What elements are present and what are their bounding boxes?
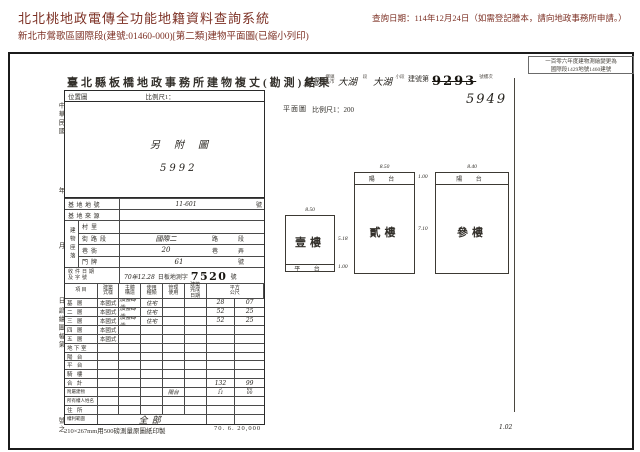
site-group-row: 村里 [79,221,264,233]
row-use [141,335,163,343]
row-complete-date [185,326,207,334]
site-location-group: 建物座落村里街路段國際二路段巷衖20巷弄門牌61號 [65,220,264,267]
row-structure [119,361,141,369]
plan-height-dim: 5.18 [338,236,348,242]
measurement-header-cell: 主體構造 [119,284,141,298]
measurement-table-row: 騎 樓 [65,370,264,379]
row-style [98,361,120,369]
row-sqm-int: 511 [207,388,236,396]
row-item-label: 陽 台 [65,353,98,361]
subsection-label: 小段 [395,74,405,79]
section-label: 段 [360,74,370,79]
remark-line2: 國際段1429地號1460建號 [529,66,633,74]
page-title: 北北桃地政電傳全功能地籍資料查詢系統 [18,8,270,27]
measurement-table-row: 基 層本國式加強磚造住宅2807 [65,299,264,308]
row-sqm-dec [235,335,264,343]
location-map-sheet-no: 5992 [160,163,197,174]
row-structure: 加強磚造 [119,299,141,307]
row-sqm-int: 52 [207,317,236,325]
plan-strip: 陽 台 [354,172,415,185]
measurement-table-row: 所有權人姓名 [65,397,264,406]
plan-strip: 平 台 [285,264,335,272]
site-group-rows: 村里街路段國際二路段巷衖20巷弄門牌61號 [79,221,264,267]
document-title: 臺北縣板橋地政事務所建物複丈(勘測)結果 [67,74,332,90]
plan-strip: 陽 台 [435,172,509,185]
row-sqm-dec: 6000 [235,388,264,396]
site-group-row-unit: 段 [238,234,264,243]
margin-note: 中華民國 [54,102,64,136]
site-row-label: 基地地號 [65,199,120,209]
measurement-table-row: 權利範圍全部 [65,415,264,424]
row-sqm-dec [235,415,264,424]
margin-note: 調繪圖幅第 [54,307,64,350]
row-style: 本國式 [98,308,120,316]
measurement-table-row: 合 計13299 [65,379,264,388]
plan-name: 參樓 [436,224,508,240]
building-no-prefix: 建號第 [408,74,429,84]
floor-plan-3: 陽 台參樓 [435,172,509,274]
plan-width-dim: 8.40 [435,164,509,170]
row-use [141,406,163,414]
row-style: 本國式 [98,326,120,334]
receipt-value: 70年12.28日板地測字7520號 [120,270,264,283]
row-sqm-dec: 99 [235,379,264,387]
row-structure [119,397,141,405]
floor-plan-scale: 比例尺1：200 [312,105,354,115]
measurement-header-cell: 平方公尺 [207,284,264,298]
row-sqm-int: 52 [207,308,236,316]
row-structure [119,335,141,343]
township-label: 鄉鎮區市 [325,74,335,84]
row-use [141,370,163,378]
row-complete-date [185,388,207,396]
row-structure [119,388,141,396]
row-manage [163,397,185,405]
measurement-table: 項 目建築式樣主體構造使用種類管理使用建築完成日期平方公尺基 層本國式加強磚造住… [64,283,265,425]
location-map-note: 另附圖 [150,136,222,151]
row-sqm-int [207,335,236,343]
receipt-office-text: 日板地測字 [158,272,188,281]
row-manage [163,406,185,414]
row-use [141,326,163,334]
measurement-table-row: 平 台 [65,361,264,370]
margin-note: 號之 [54,417,64,434]
row-structure [119,326,141,334]
measurement-header-cell: 項 目 [65,284,98,298]
site-group-row: 門牌61號 [79,256,264,268]
receipt-row: 收件日期及字號70年12.28日板地測字7520號 [65,267,264,284]
row-sqm-dec [235,361,264,369]
measurement-table-row: 四 層本國式 [65,326,264,335]
measurement-table-header: 項 目建築式樣主體構造使用種類管理使用建築完成日期平方公尺 [65,284,264,299]
floor-plan-section-label: 平面圖 [283,104,307,114]
plan-name: 壹樓 [286,234,334,250]
site-group-row: 巷衖20巷弄 [79,244,264,256]
row-sqm-dec [235,406,264,414]
row-item-label: 附屬建物 [65,388,98,396]
page-subtitle: 新北市鶯歌區國際段(建號:01460-000)[第二類]建物平面圖(已縮小列印) [18,28,309,42]
plan-height-dim: 7.10 [418,226,428,232]
building-header: 鶯歌 鄉鎮區市 大湖 段 大湖 小段 建號第 9293 號樓次 [303,74,493,89]
row-complete-date [185,397,207,405]
row-sqm-int [207,415,236,424]
row-complete-date [185,353,207,361]
row-use: 住宅 [141,317,163,325]
row-style [98,344,120,352]
section-value: 大湖 [338,74,357,88]
row-complete-date [185,344,207,352]
row-item-label: 權利範圍 [65,415,98,424]
site-group-row-unit: 路 [212,234,238,243]
location-map-box: 位置圖 比例尺1： 另附圖 5992 [64,90,265,198]
measurement-table-row: 住 所 [65,406,264,415]
row-sqm-int [207,406,236,414]
plan-width-dim: 8.50 [354,164,415,170]
row-sqm-dec [235,353,264,361]
measurement-table-row: 附屬建物陽台5116000 [65,388,264,397]
plan-strip-dim: 1.00 [418,174,428,180]
paper-spec-note: 210×267mm用500磅測量原圖紙印製 [64,425,166,435]
row-sqm-int [207,326,236,334]
row-manage: 陽台 [163,388,185,396]
site-group-label: 建物座落 [65,221,79,267]
building-no-old-stamp: 9293 [432,74,476,89]
row-style [98,388,120,396]
margin-note: 月 [54,242,64,251]
subsection-value: 大湖 [373,74,392,88]
plan-strip-dim: 1.00 [338,264,348,270]
site-group-row-label: 村里 [79,221,120,233]
row-use [141,397,163,405]
measurement-table-row: 陽 台 [65,353,264,362]
row-style [98,353,120,361]
measurement-header-cell: 建築式樣 [98,284,120,298]
row-item-label: 四 層 [65,326,98,334]
row-sqm-dec [235,370,264,378]
row-style [98,379,120,387]
row-item-label: 五 層 [65,335,98,343]
site-row-value: 11-601 [120,201,252,208]
receipt-date: 70年12.28 [124,272,155,281]
margin-note: 日 [54,297,64,306]
row-sqm-dec: 07 [235,299,264,307]
row-sqm-dec: 25 [235,317,264,325]
row-manage [163,344,185,352]
measurement-table-row: 三 層本國式加強磚造住宅5225 [65,317,264,326]
print-run-note: 70. 6. 20,000 [214,425,261,432]
row-item-label: 住 所 [65,406,98,414]
row-wide-value: 全部 [98,415,207,424]
remark-line1: 一百零六年度建物測繪變更為 [529,58,633,66]
row-manage [163,335,185,343]
row-manage [163,308,185,316]
site-group-row-unit: 號 [238,257,264,266]
floor-plan-2: 陽 台貳樓 [354,172,415,274]
location-map-scale-label: 比例尺1： [146,91,175,101]
row-complete-date [185,335,207,343]
row-sqm-int: 132 [207,379,236,387]
site-row: 基地地號11-601號 [65,198,264,209]
row-sqm-int [207,353,236,361]
row-sqm-dec [235,326,264,334]
margin-note: 年 [54,187,64,196]
row-style [98,397,120,405]
row-structure [119,353,141,361]
site-group-row-label: 門牌 [79,257,120,268]
row-use: 住宅 [141,299,163,307]
site-table: 基地地號11-601號基地來源建物座落村里街路段國際二路段巷衖20巷弄門牌61號… [64,198,265,284]
building-no-new: 5949 [466,92,507,107]
row-manage [163,326,185,334]
row-sqm-dec [235,397,264,405]
row-complete-date [185,379,207,387]
site-group-row-value: 國際二 [120,234,212,244]
measurement-header-cell: 使用種類 [141,284,163,298]
row-use: 住宅 [141,308,163,316]
row-manage [163,361,185,369]
row-sqm-int [207,370,236,378]
row-item-label: 地下室 [65,344,98,352]
remark-box: 一百零六年度建物測繪變更為 國際段1429地號1460建號 [528,56,634,74]
query-date: 查詢日期：114年12月24日（如需登記謄本，請向地政事務所申請。） [372,12,627,24]
row-manage [163,299,185,307]
row-item-label: 平 台 [65,361,98,369]
measurement-header-cell: 管理使用 [163,284,185,298]
corner-note: 1.02 [499,424,512,431]
building-no-suffix: 號樓次 [479,74,493,79]
plan-name: 貳樓 [355,224,414,240]
row-style: 本國式 [98,299,120,307]
row-use [141,353,163,361]
site-row-label: 基地來源 [65,210,120,220]
receipt-label-line2: 及字號 [68,276,119,282]
row-sqm-int [207,344,236,352]
row-complete-date [185,308,207,316]
row-item-label: 二 層 [65,308,98,316]
row-style [98,406,120,414]
township-value: 鶯歌 [303,74,322,88]
site-group-row-unit: 巷 [212,246,238,255]
receipt-suffix: 號 [230,272,236,281]
receipt-label: 收件日期及字號 [65,268,120,284]
row-item-label: 基 層 [65,299,98,307]
row-manage [163,379,185,387]
site-row-suffix: 號 [252,200,264,209]
site-group-row-label: 街路段 [79,234,120,245]
row-use [141,344,163,352]
floor-plan-1: 平 台壹樓 [285,215,335,272]
row-sqm-int [207,361,236,369]
row-structure: 加強磚造 [119,317,141,325]
measurement-header-cell: 建築完成日期 [185,284,207,298]
site-group-row-label: 巷衖 [79,245,120,256]
receipt-number: 7520 [191,270,228,283]
location-map-label: 位置圖 [68,91,88,101]
row-sqm-dec: 25 [235,308,264,316]
measurement-table-row: 地下室 [65,344,264,353]
row-item-label: 合 計 [65,379,98,387]
row-use [141,379,163,387]
row-style [98,370,120,378]
row-sqm-int [207,397,236,405]
row-style: 本國式 [98,317,120,325]
plan-width-dim: 8.50 [285,207,335,213]
row-style: 本國式 [98,335,120,343]
site-row: 基地來源 [65,209,264,220]
row-complete-date [185,406,207,414]
document-frame: 一百零六年度建物測繪變更為 國際段1429地號1460建號 臺北縣板橋地政事務所… [8,52,634,450]
row-structure [119,406,141,414]
row-complete-date [185,361,207,369]
row-complete-date [185,370,207,378]
row-manage [163,370,185,378]
row-item-label: 騎 樓 [65,370,98,378]
row-use [141,361,163,369]
row-complete-date [185,317,207,325]
site-group-row-unit: 弄 [238,246,264,255]
row-item-label: 三 層 [65,317,98,325]
row-structure [119,379,141,387]
row-complete-date [185,299,207,307]
row-sqm-dec [235,344,264,352]
row-manage [163,317,185,325]
row-use [141,388,163,396]
site-group-row: 街路段國際二路段 [79,233,264,245]
measurement-table-row: 二 層本國式加強磚造住宅5225 [65,308,264,317]
row-manage [163,353,185,361]
site-group-row-value: 20 [120,246,212,254]
row-sqm-int: 28 [207,299,236,307]
measurement-table-row: 五 層本國式 [65,335,264,344]
row-structure [119,344,141,352]
row-item-label: 所有權人姓名 [65,397,98,405]
row-structure: 加強磚造 [119,308,141,316]
row-structure [119,370,141,378]
site-group-row-value: 61 [120,258,238,266]
scan-fold-line [514,78,515,412]
